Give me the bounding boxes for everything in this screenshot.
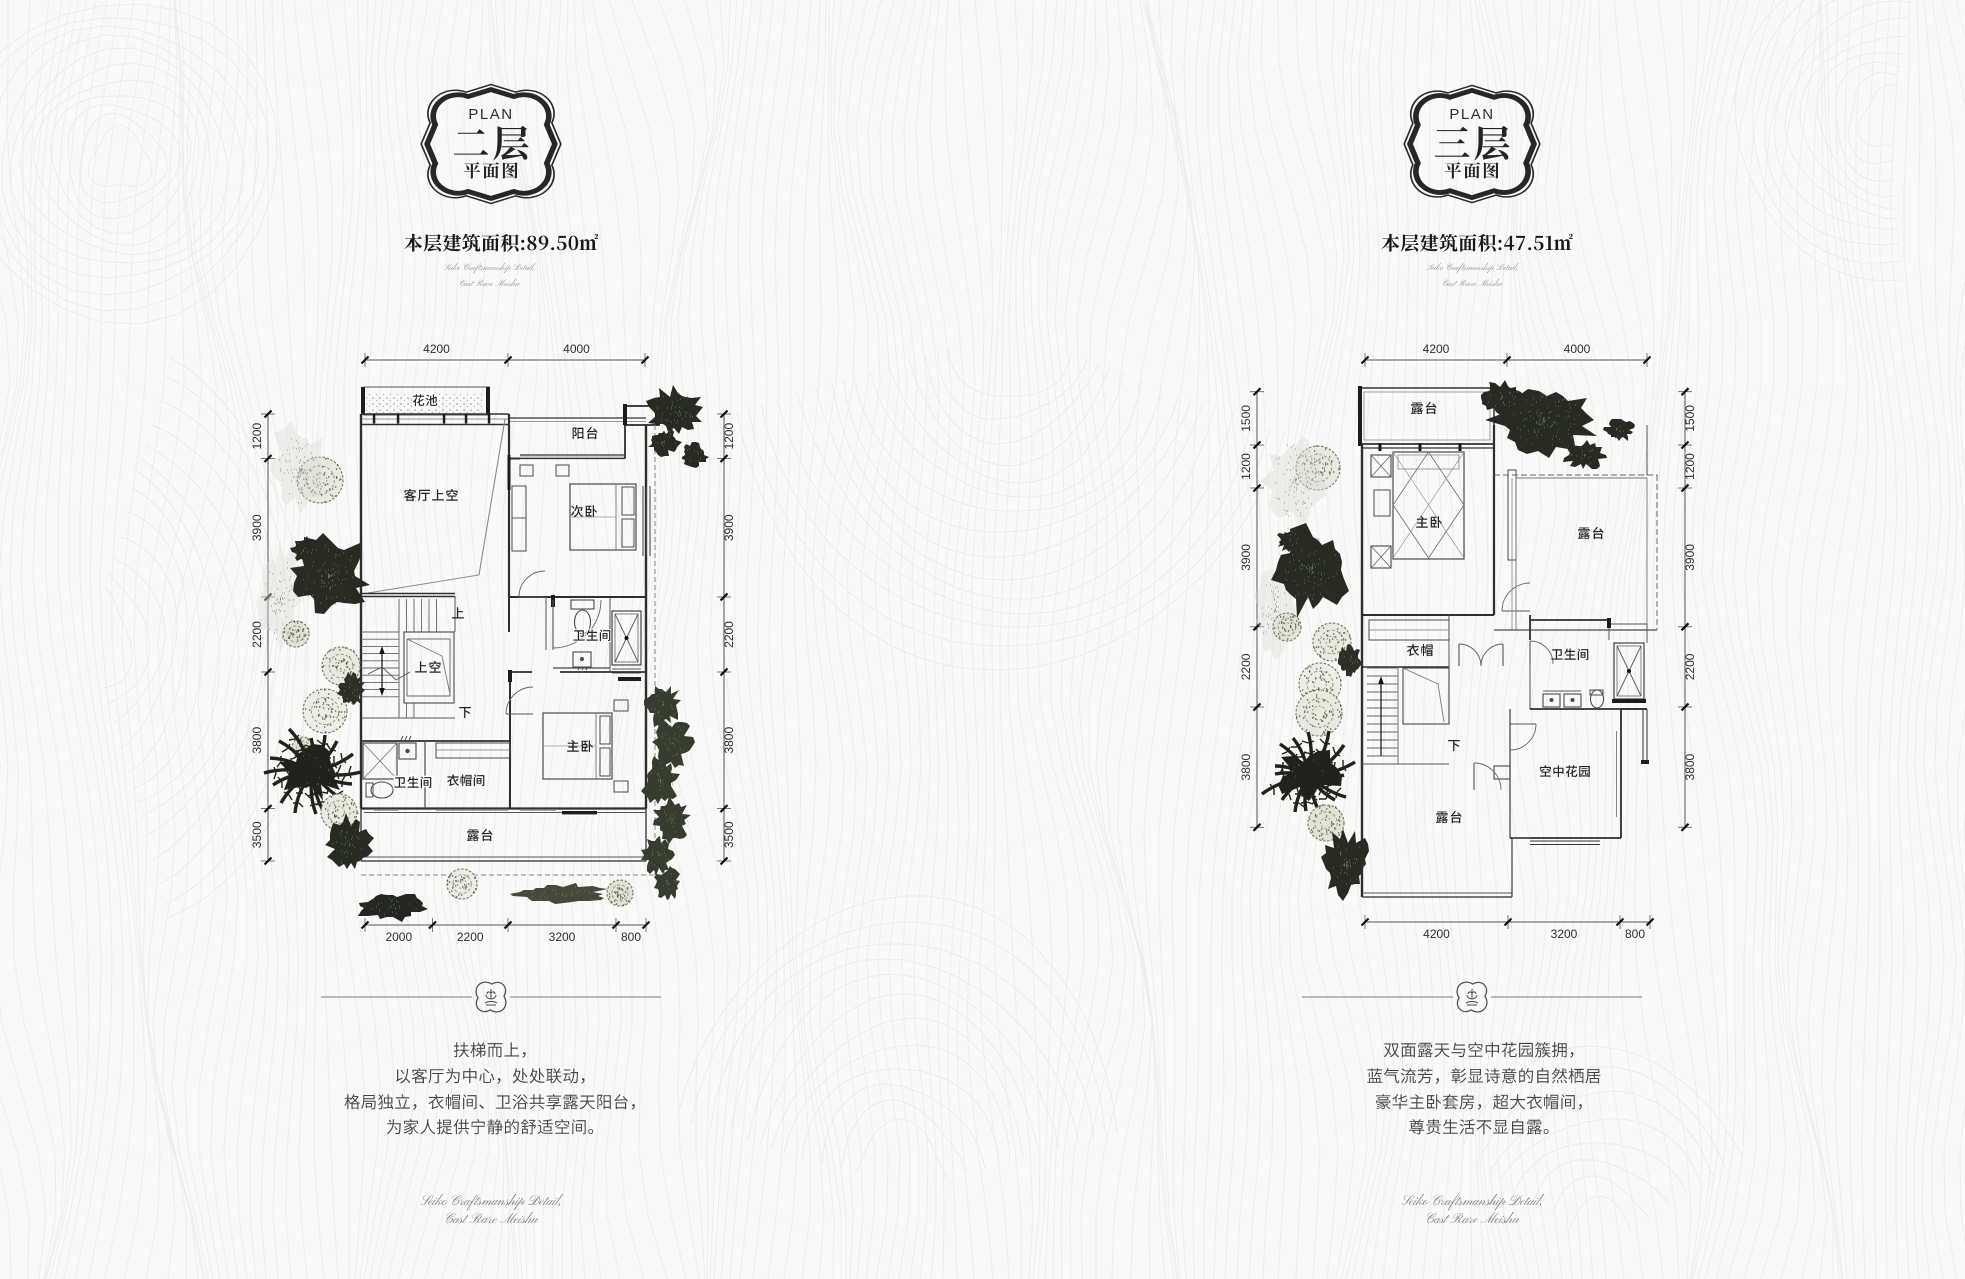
svg-text:3500: 3500 <box>722 821 736 848</box>
svg-text:3500: 3500 <box>250 821 264 848</box>
svg-text:3200: 3200 <box>549 930 576 944</box>
svg-text:4000: 4000 <box>563 342 590 356</box>
svg-text:4200: 4200 <box>1423 927 1450 941</box>
svg-text:PLAN: PLAN <box>1449 106 1494 123</box>
svg-text:3900: 3900 <box>1683 544 1697 571</box>
svg-text:1200: 1200 <box>250 423 264 450</box>
svg-text:1200: 1200 <box>722 423 736 450</box>
svg-text:4200: 4200 <box>423 342 450 356</box>
svg-text:800: 800 <box>621 930 641 944</box>
svg-text:2200: 2200 <box>457 930 484 944</box>
svg-text:1500: 1500 <box>1239 405 1253 432</box>
svg-text:PLAN: PLAN <box>468 106 513 123</box>
svg-text:1200: 1200 <box>1239 453 1253 480</box>
svg-text:3800: 3800 <box>250 727 264 754</box>
svg-text:3900: 3900 <box>250 514 264 541</box>
svg-text:4000: 4000 <box>1564 342 1591 356</box>
svg-text:3800: 3800 <box>1683 753 1697 780</box>
svg-text:3800: 3800 <box>722 727 736 754</box>
svg-text:2200: 2200 <box>1683 653 1697 680</box>
svg-text:1500: 1500 <box>1683 405 1697 432</box>
svg-text:3900: 3900 <box>1239 544 1253 571</box>
svg-text:3800: 3800 <box>1239 753 1253 780</box>
svg-text:800: 800 <box>1625 927 1645 941</box>
svg-text:2200: 2200 <box>1239 653 1253 680</box>
svg-text:2000: 2000 <box>385 930 412 944</box>
svg-text:1200: 1200 <box>1683 453 1697 480</box>
svg-text:3900: 3900 <box>722 514 736 541</box>
svg-text:3200: 3200 <box>1551 927 1578 941</box>
svg-text:2200: 2200 <box>722 621 736 648</box>
svg-text:4200: 4200 <box>1423 342 1450 356</box>
